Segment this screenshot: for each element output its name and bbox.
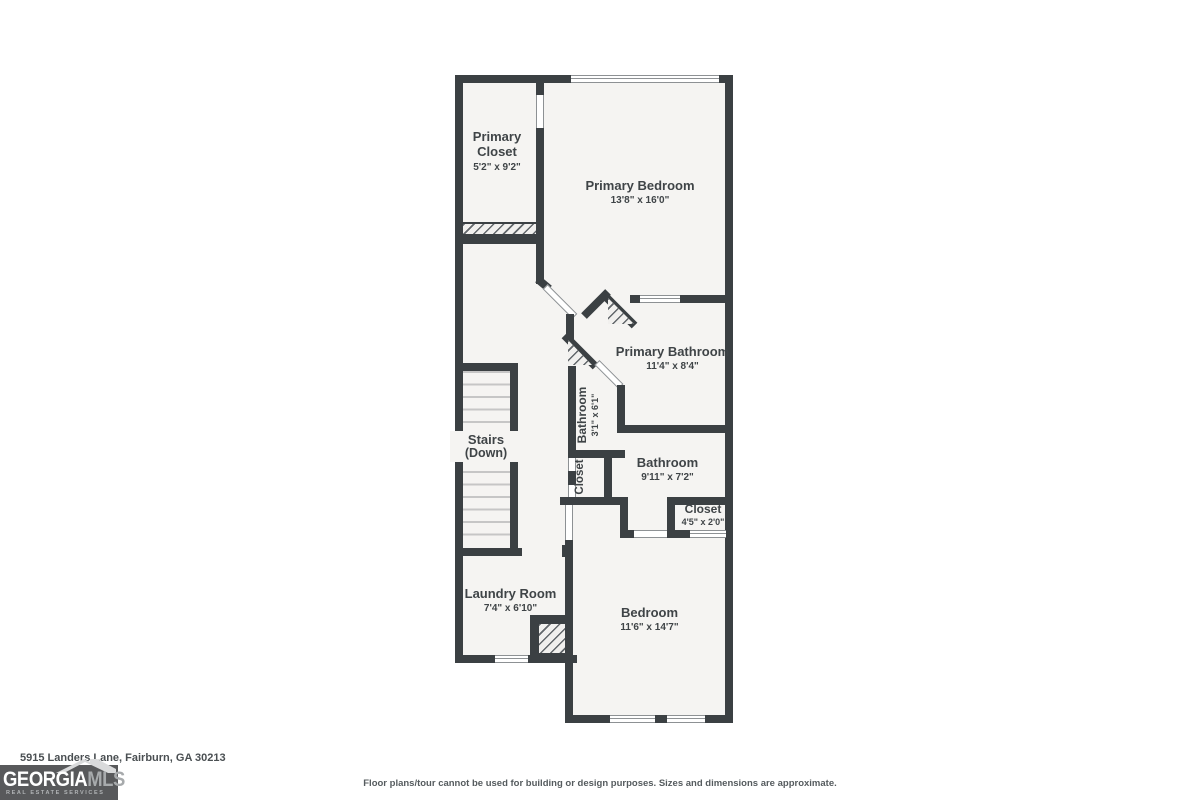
logo-tagline: REAL ESTATE SERVICES <box>6 790 105 796</box>
window <box>667 715 705 723</box>
wall <box>536 128 544 238</box>
disclaimer-text: Floor plans/tour cannot be used for buil… <box>0 778 1200 789</box>
room-label-primary-bathroom: Primary Bathroom 11'4" x 8'4" <box>590 344 755 372</box>
door-opening <box>536 95 544 128</box>
logo-brand-primary: GEORGIA <box>3 768 87 791</box>
room-dims: 11'4" x 8'4" <box>590 361 755 372</box>
floor-plan-page: Primary Closet 5'2" x 9'2" Primary Bedro… <box>0 0 1200 800</box>
room-label-bathroom: Bathroom 9'11" x 7'2" <box>600 455 735 483</box>
room-dims: 3'1" x 6'1" <box>591 370 601 460</box>
wall <box>536 83 544 95</box>
door-opening <box>690 530 726 538</box>
room-name: Primary Bedroom <box>555 178 725 193</box>
wall <box>620 530 634 538</box>
logo-brand-secondary: MLS <box>87 768 125 791</box>
wall <box>562 545 573 557</box>
room-label-laundry: Laundry Room 7'4" x 6'10" <box>453 586 568 614</box>
room-dims: 9'11" x 7'2" <box>600 472 735 483</box>
room-label-bedroom: Bedroom 11'6" x 14'7" <box>582 605 717 633</box>
room-label-primary-bedroom: Primary Bedroom 13'8" x 16'0" <box>555 178 725 206</box>
room-dims: 4'5" x 2'0" <box>670 518 736 528</box>
property-address: 5915 Landers Lane, Fairburn, GA 30213 <box>20 752 226 764</box>
wall <box>455 363 517 371</box>
room-name: Closet <box>574 452 588 502</box>
room-dims: 11'6" x 14'7" <box>582 622 717 633</box>
window <box>495 655 528 663</box>
room-name: Primary Closet <box>457 129 537 160</box>
room-label-bathroom-small: Bathroom 3'1" x 6'1" <box>575 370 609 460</box>
room-label-hall-closet: Closet <box>574 452 590 502</box>
wall <box>455 548 522 556</box>
room-name: Bathroom <box>575 370 589 460</box>
room-name: Bathroom <box>600 455 735 470</box>
wall <box>725 75 733 723</box>
room-dims: 13'8" x 16'0" <box>555 195 725 206</box>
window <box>640 295 680 303</box>
door-opening <box>634 530 667 538</box>
floor-area-bedroom <box>565 663 733 723</box>
wall <box>560 497 628 505</box>
room-name: Bedroom <box>582 605 717 620</box>
georgia-mls-logo: GEORGIAMLS REAL ESTATE SERVICES <box>0 765 118 800</box>
hatch-closet-rod <box>463 222 536 236</box>
room-label-bedroom-closet: Closet 4'5" x 2'0" <box>670 502 736 528</box>
hatch-chase <box>537 622 567 655</box>
room-name: Primary Bathroom <box>590 344 755 359</box>
window <box>610 715 655 723</box>
door-opening <box>565 505 573 541</box>
room-dims: 7'4" x 6'10" <box>453 603 568 614</box>
room-name: Laundry Room <box>453 586 568 601</box>
room-label-primary-closet: Primary Closet 5'2" x 9'2" <box>457 129 537 173</box>
room-label-stairs: Stairs (Down) <box>450 431 522 462</box>
room-dims: 5'2" x 9'2" <box>457 162 537 173</box>
logo-brand: GEORGIAMLS <box>3 768 125 792</box>
wall <box>617 425 733 433</box>
window <box>571 75 719 83</box>
room-name: Stairs <box>450 432 522 447</box>
wall <box>455 236 544 244</box>
room-name: Closet <box>670 502 736 516</box>
room-dims: (Down) <box>450 447 522 461</box>
